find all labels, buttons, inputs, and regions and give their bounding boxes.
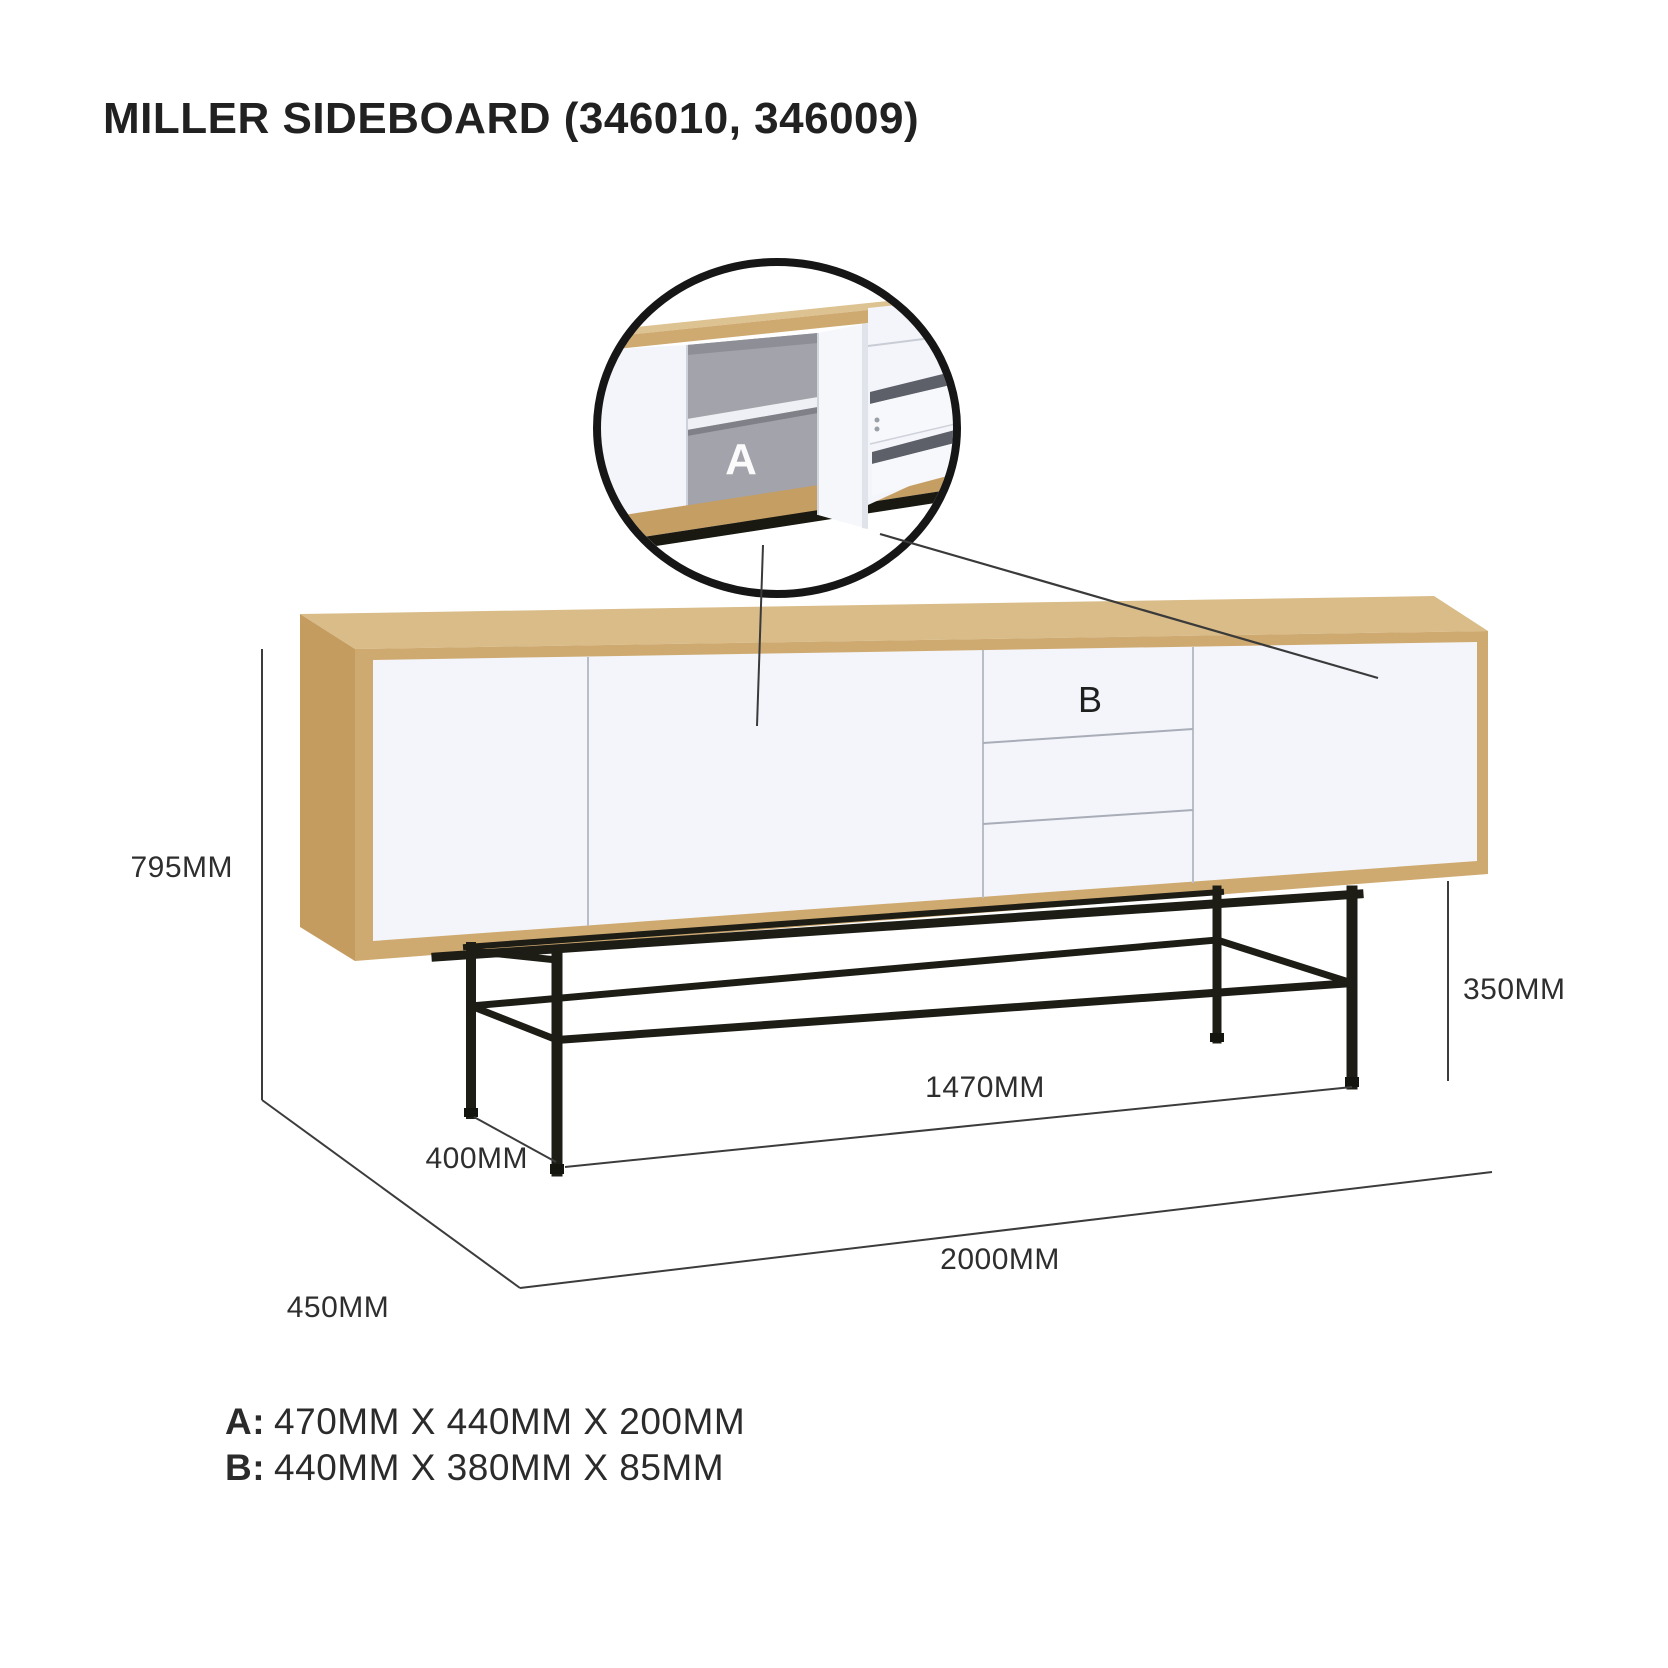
dim-depth-line	[262, 1100, 520, 1288]
base-feet	[464, 1033, 1359, 1174]
callout-a-label: A	[725, 435, 757, 484]
dim-height-label: 795MM	[130, 851, 233, 884]
detail-drawer-screw-2	[875, 427, 880, 432]
spec-b-label: B:	[225, 1447, 265, 1488]
foot-rear-left	[464, 1108, 478, 1117]
cabinet-left-panel	[300, 614, 355, 961]
spec-line-b: B:440MM X 380MM X 85MM	[225, 1445, 745, 1491]
cabinet: B	[300, 596, 1488, 961]
base-cross-mid-left	[471, 1006, 557, 1040]
spec-b-value: 440MM X 380MM X 85MM	[274, 1447, 724, 1488]
foot-front-left	[550, 1164, 564, 1174]
spec-a-label: A:	[225, 1401, 265, 1442]
dim-frame-width-label: 1470MM	[925, 1071, 1045, 1104]
spec-a-value: 470MM X 440MM X 200MM	[274, 1401, 745, 1442]
spec-line-a: A:470MM X 440MM X 200MM	[225, 1399, 745, 1445]
dim-width-label: 2000MM	[940, 1243, 1060, 1276]
product-dimension-diagram: MILLER SIDEBOARD (346010, 346009) B	[0, 0, 1668, 1668]
dim-leg-depth-label: 400MM	[425, 1142, 528, 1175]
foot-front-right	[1345, 1077, 1359, 1087]
dim-depth-label: 450MM	[287, 1291, 390, 1324]
detail-drawer-screw-1	[875, 418, 880, 423]
detail-open-door	[818, 323, 868, 529]
base-cross-mid-right	[1217, 940, 1352, 983]
detail-open-door-side	[862, 323, 868, 529]
base-stretcher-front	[557, 983, 1352, 1040]
spec-block: A:470MM X 440MM X 200MM B:440MM X 380MM …	[225, 1399, 745, 1491]
foot-rear-right	[1210, 1033, 1224, 1042]
callout-b-label: B	[1078, 679, 1102, 720]
dim-leg-height-label: 350MM	[1463, 973, 1566, 1006]
